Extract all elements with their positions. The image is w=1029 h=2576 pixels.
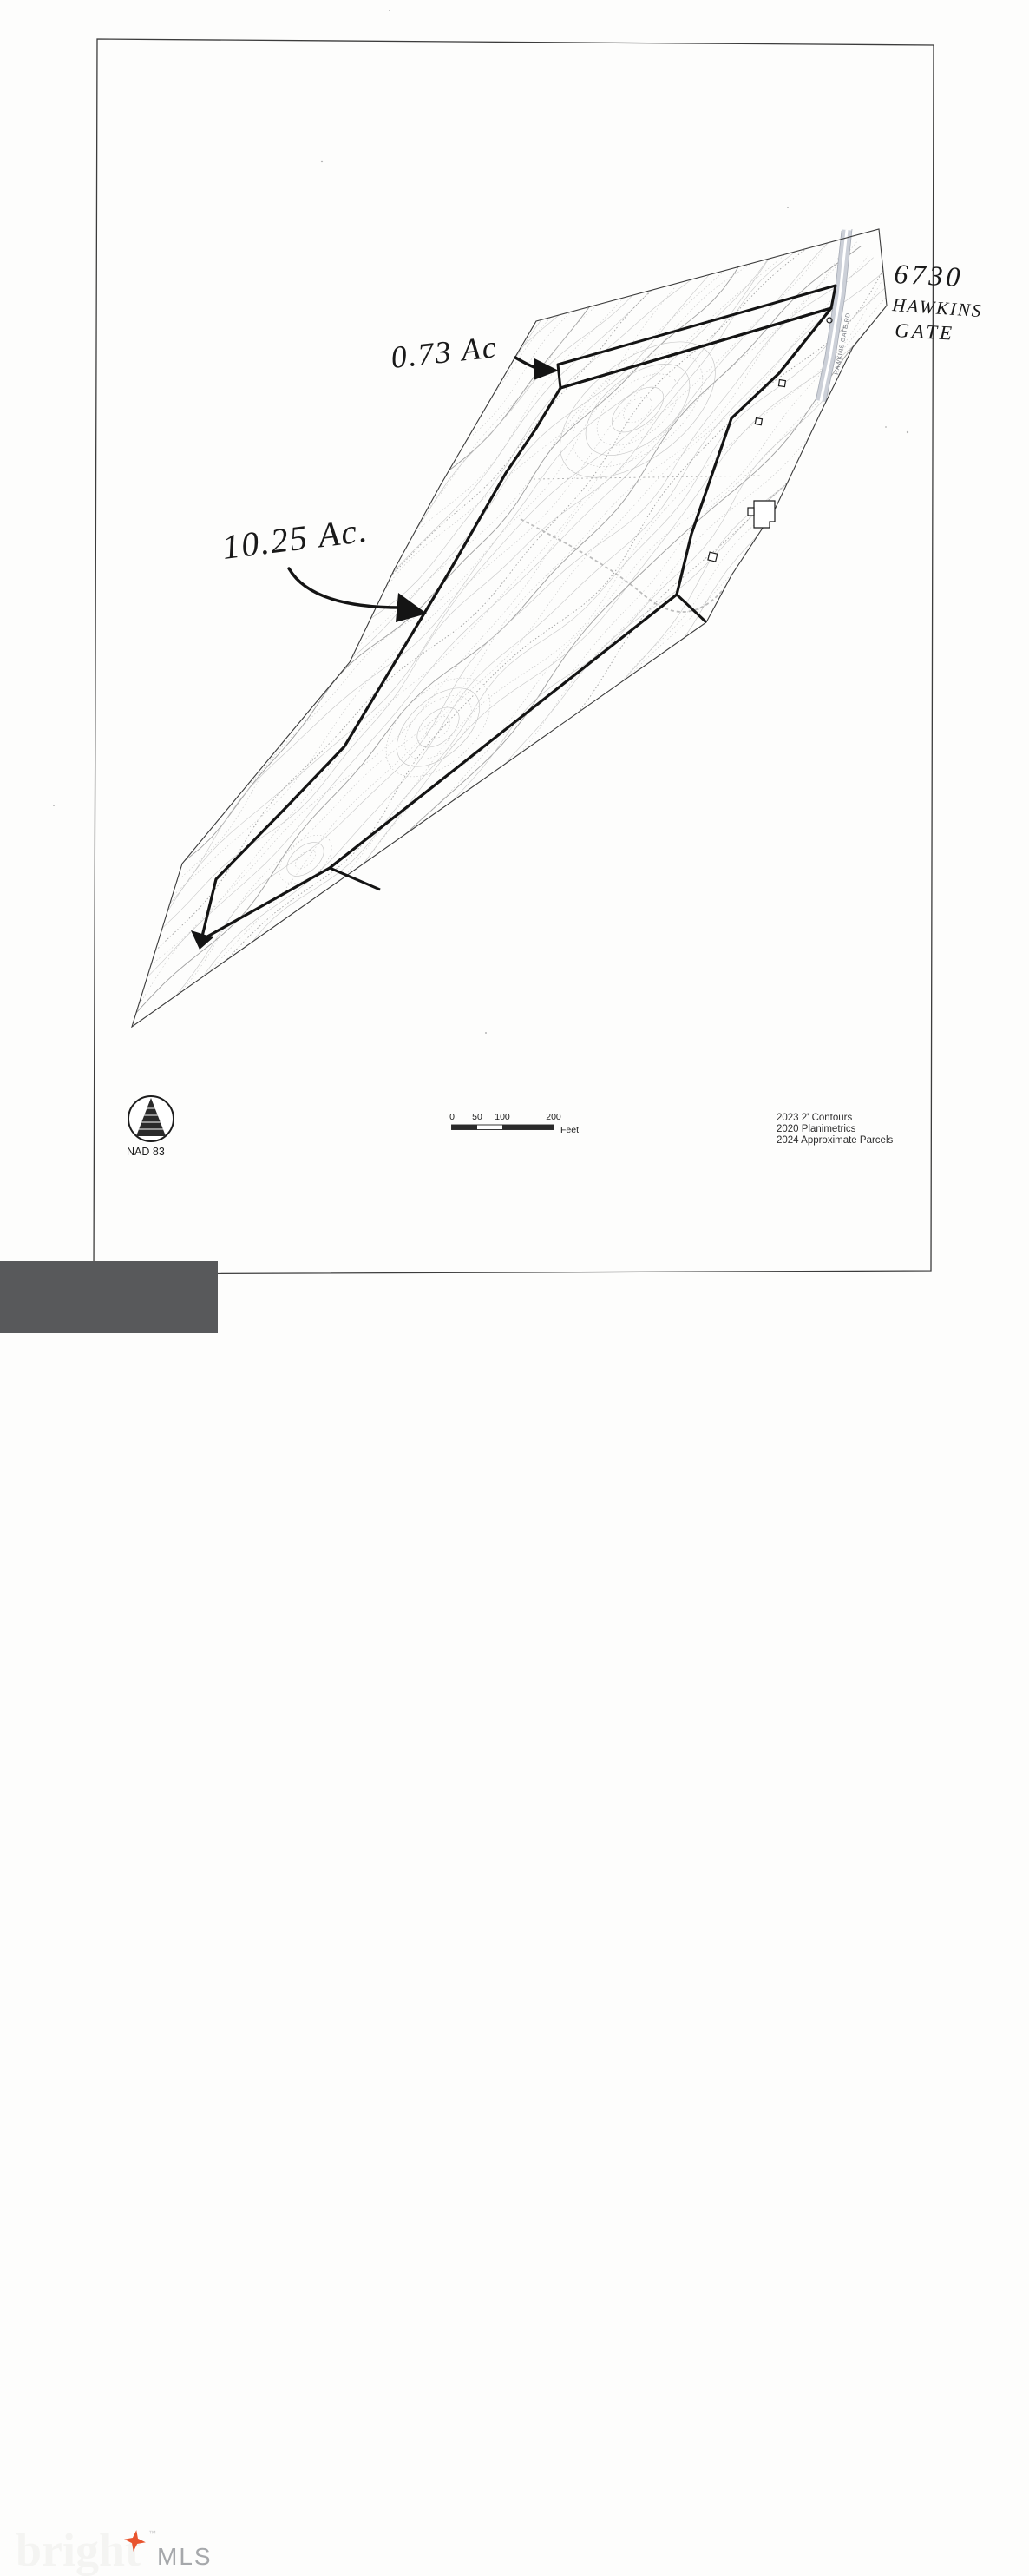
- scale-bar: 0 50 100 200 Feet: [449, 1112, 579, 1135]
- datum-label: NAD 83: [127, 1146, 165, 1158]
- building-footprints: [708, 318, 832, 562]
- annotation-arrow: [289, 568, 401, 608]
- address-line-1: 6730: [894, 258, 965, 292]
- scan-specks: [53, 10, 908, 1034]
- building-marker-diamond: [708, 552, 718, 562]
- brand-logo: bright ™ MLS: [0, 1261, 218, 1333]
- large-parcel-acreage-label: 10.25 Ac.: [220, 510, 371, 567]
- address-line-3: GATE: [895, 319, 955, 345]
- brand-star-icon: [124, 2530, 146, 2552]
- strip-parcel-boundary-0-73ac: [558, 286, 836, 388]
- boundary-tie-line: [677, 595, 706, 622]
- scale-tick-200: 200: [546, 1112, 561, 1122]
- building-marker-diamond: [778, 380, 785, 387]
- brand-suffix: MLS: [157, 2543, 213, 2571]
- legend-line-3: 2024 Approximate Parcels: [777, 1135, 893, 1146]
- plat-map: HAWKINS GATE RD 0.73 Ac 10.25 Ac. 6730 H…: [0, 0, 1029, 1333]
- main-parcel-boundary-10-25ac: [201, 308, 831, 940]
- legend-line-2: 2020 Planimetrics: [777, 1124, 856, 1134]
- hawkins-gate-road: HAWKINS GATE RD: [816, 229, 852, 401]
- scanned-plat-page: HAWKINS GATE RD 0.73 Ac 10.25 Ac. 6730 H…: [0, 0, 1029, 1333]
- north-arrow: NAD 83: [127, 1096, 174, 1158]
- source-legend: 2023 2' Contours 2020 Planimetrics 2024 …: [777, 1113, 893, 1146]
- address-line-2: HAWKINS: [891, 294, 984, 321]
- scale-tick-50: 50: [472, 1112, 482, 1122]
- building-footprint: [754, 501, 775, 528]
- scale-tick-0: 0: [449, 1112, 455, 1122]
- outer-parcel-boundary: [132, 229, 887, 1027]
- scale-tick-100: 100: [495, 1112, 510, 1122]
- small-parcel-acreage-label: 0.73 Ac: [390, 329, 500, 375]
- contour-lines: [0, 88, 1014, 1168]
- building-marker-diamond: [755, 418, 762, 425]
- boundary-tie-line: [330, 868, 380, 890]
- brand-wordmark: bright: [16, 2527, 141, 2573]
- brand-trademark: ™: [148, 2529, 156, 2538]
- page-border: [94, 39, 934, 1274]
- legend-line-1: 2023 2' Contours: [777, 1113, 852, 1123]
- scale-unit-label: Feet: [560, 1125, 579, 1135]
- building-footprint: [748, 508, 754, 516]
